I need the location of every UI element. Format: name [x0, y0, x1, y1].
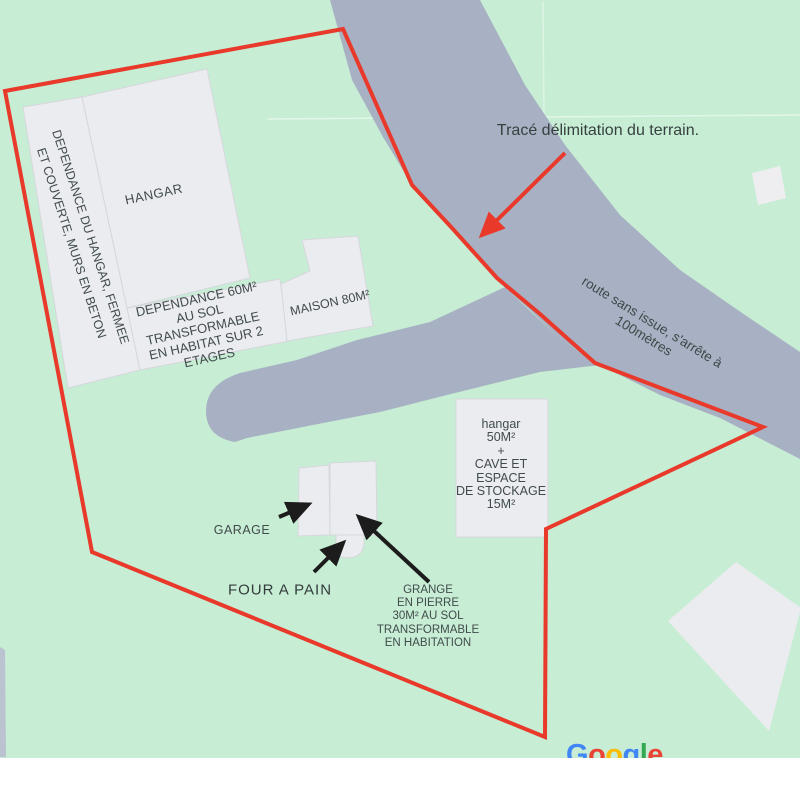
- map-shapes: [0, 0, 800, 800]
- hangar-50-label: hangar 50M² + CAVE ET ESPACE DE STOCKAGE…: [456, 418, 546, 512]
- trace-delimitation-label: Tracé délimitation du terrain.: [497, 122, 699, 140]
- parcel-line-vertical: [543, 2, 544, 117]
- road-sliver: [0, 647, 6, 757]
- garage-label: GARAGE: [214, 523, 271, 537]
- map-canvas: Tracé délimitation du terrain. route san…: [0, 0, 800, 800]
- four-a-pain-label: FOUR A PAIN: [228, 581, 332, 598]
- bottom-white-band: [0, 758, 800, 800]
- building-small-square: [752, 166, 786, 205]
- building-grange: [330, 461, 377, 535]
- building-garage: [298, 465, 330, 536]
- grange-label: GRANGE EN PIERRE 30M² AU SOL TRANSFORMAB…: [377, 584, 479, 650]
